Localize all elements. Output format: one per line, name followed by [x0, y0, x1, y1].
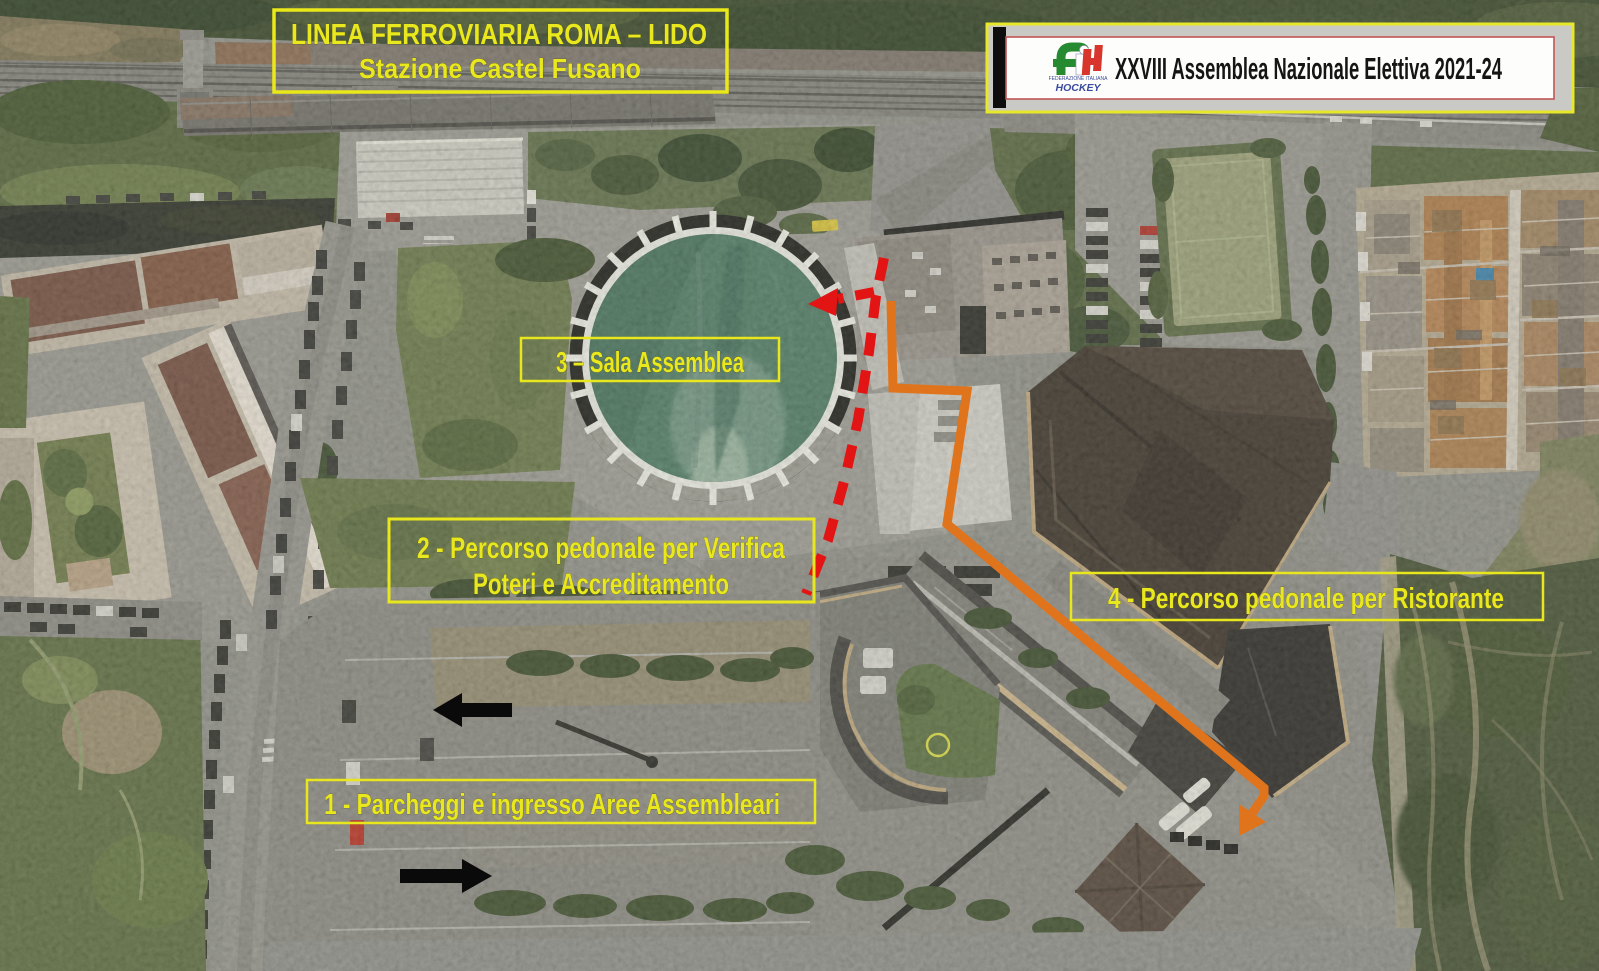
svg-text:XXVIII Assemblea Nazionale Ele: XXVIII Assemblea Nazionale Elettiva 2021… — [1115, 51, 1502, 86]
svg-text:3 – Sala Assemblea: 3 – Sala Assemblea — [556, 347, 745, 379]
svg-text:4 - Percorso pedonale per Rist: 4 - Percorso pedonale per Ristorante — [1108, 583, 1504, 615]
svg-text:1 - Parcheggi e ingresso Aree: 1 - Parcheggi e ingresso Aree Assemblear… — [324, 789, 780, 821]
svg-text:Stazione Castel Fusano: Stazione Castel Fusano — [359, 53, 641, 84]
svg-text:Poteri e Accreditamento: Poteri e Accreditamento — [473, 568, 729, 601]
svg-text:HOCKEY: HOCKEY — [1056, 82, 1102, 94]
svg-text:LINEA FERROVIARIA ROMA – LIDO: LINEA FERROVIARIA ROMA – LIDO — [291, 19, 707, 51]
svg-text:2 - Percorso pedonale per Veri: 2 - Percorso pedonale per Verifica — [417, 532, 785, 565]
